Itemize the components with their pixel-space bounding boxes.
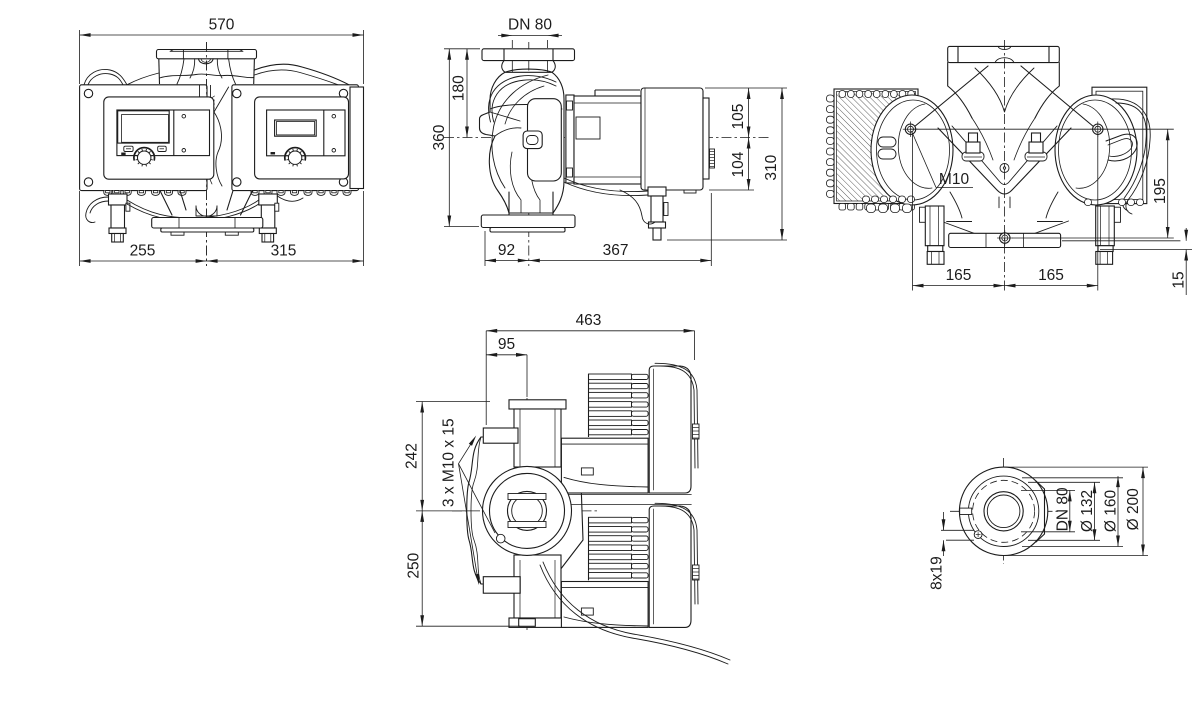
svg-text:DN 80: DN 80 xyxy=(508,17,552,34)
svg-text:165: 165 xyxy=(946,267,972,284)
svg-text:195: 195 xyxy=(1152,178,1169,204)
svg-text:360: 360 xyxy=(431,124,448,150)
svg-text:315: 315 xyxy=(271,243,297,260)
svg-text:3 x M10 x 15: 3 x M10 x 15 xyxy=(440,418,457,507)
svg-text:570: 570 xyxy=(209,17,235,34)
svg-text:105: 105 xyxy=(730,104,747,130)
svg-text:8x19: 8x19 xyxy=(929,556,946,590)
svg-text:M10: M10 xyxy=(939,171,970,188)
svg-text:95: 95 xyxy=(498,336,515,353)
svg-text:250: 250 xyxy=(405,552,422,578)
svg-text:92: 92 xyxy=(498,242,515,259)
svg-text:Ø 200: Ø 200 xyxy=(1125,488,1142,531)
svg-text:Ø 160: Ø 160 xyxy=(1103,490,1120,533)
svg-text:DN 80: DN 80 xyxy=(1055,487,1072,531)
svg-text:165: 165 xyxy=(1038,267,1064,284)
svg-text:255: 255 xyxy=(130,243,156,260)
svg-text:463: 463 xyxy=(576,312,602,329)
svg-text:180: 180 xyxy=(451,75,468,101)
svg-text:Ø 132: Ø 132 xyxy=(1079,490,1096,532)
svg-text:310: 310 xyxy=(763,154,780,180)
svg-text:367: 367 xyxy=(603,242,629,259)
svg-text:242: 242 xyxy=(404,443,421,469)
svg-text:104: 104 xyxy=(730,151,747,177)
svg-text:15: 15 xyxy=(1170,271,1187,288)
